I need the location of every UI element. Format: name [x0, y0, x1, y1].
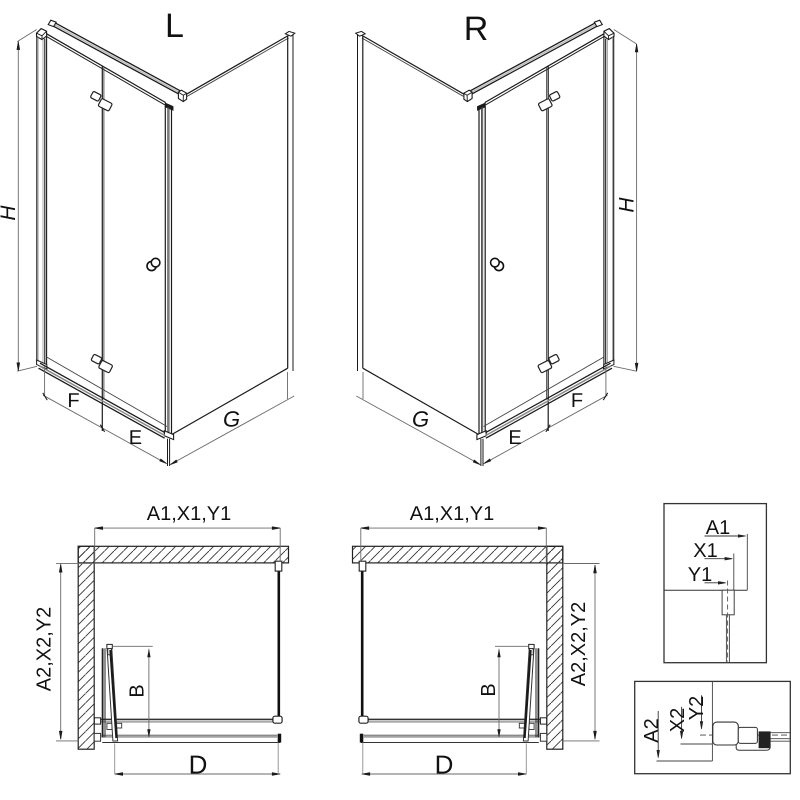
- svg-text:A2,X2,Y2: A2,X2,Y2: [34, 607, 56, 692]
- svg-text:R: R: [464, 10, 489, 48]
- svg-text:E: E: [129, 427, 142, 449]
- svg-text:A1,X1,Y1: A1,X1,Y1: [147, 503, 232, 525]
- svg-text:H: H: [0, 205, 20, 221]
- svg-text:B: B: [478, 683, 500, 696]
- svg-text:G: G: [412, 406, 429, 431]
- svg-text:A2,X2,Y2: A2,X2,Y2: [568, 602, 590, 687]
- svg-text:Y1: Y1: [688, 564, 712, 586]
- svg-text:F: F: [571, 390, 583, 412]
- svg-text:Y2: Y2: [686, 696, 708, 720]
- svg-text:D: D: [435, 749, 454, 779]
- svg-text:B: B: [127, 684, 149, 697]
- svg-text:F: F: [67, 390, 79, 412]
- svg-text:E: E: [508, 427, 521, 449]
- svg-text:G: G: [223, 406, 240, 431]
- svg-text:A1,X1,Y1: A1,X1,Y1: [410, 503, 495, 525]
- svg-text:H: H: [616, 197, 639, 213]
- svg-text:X1: X1: [693, 540, 717, 562]
- svg-text:D: D: [189, 749, 208, 779]
- svg-text:A2: A2: [641, 718, 663, 742]
- svg-text:A1: A1: [706, 517, 730, 539]
- svg-text:L: L: [165, 7, 184, 45]
